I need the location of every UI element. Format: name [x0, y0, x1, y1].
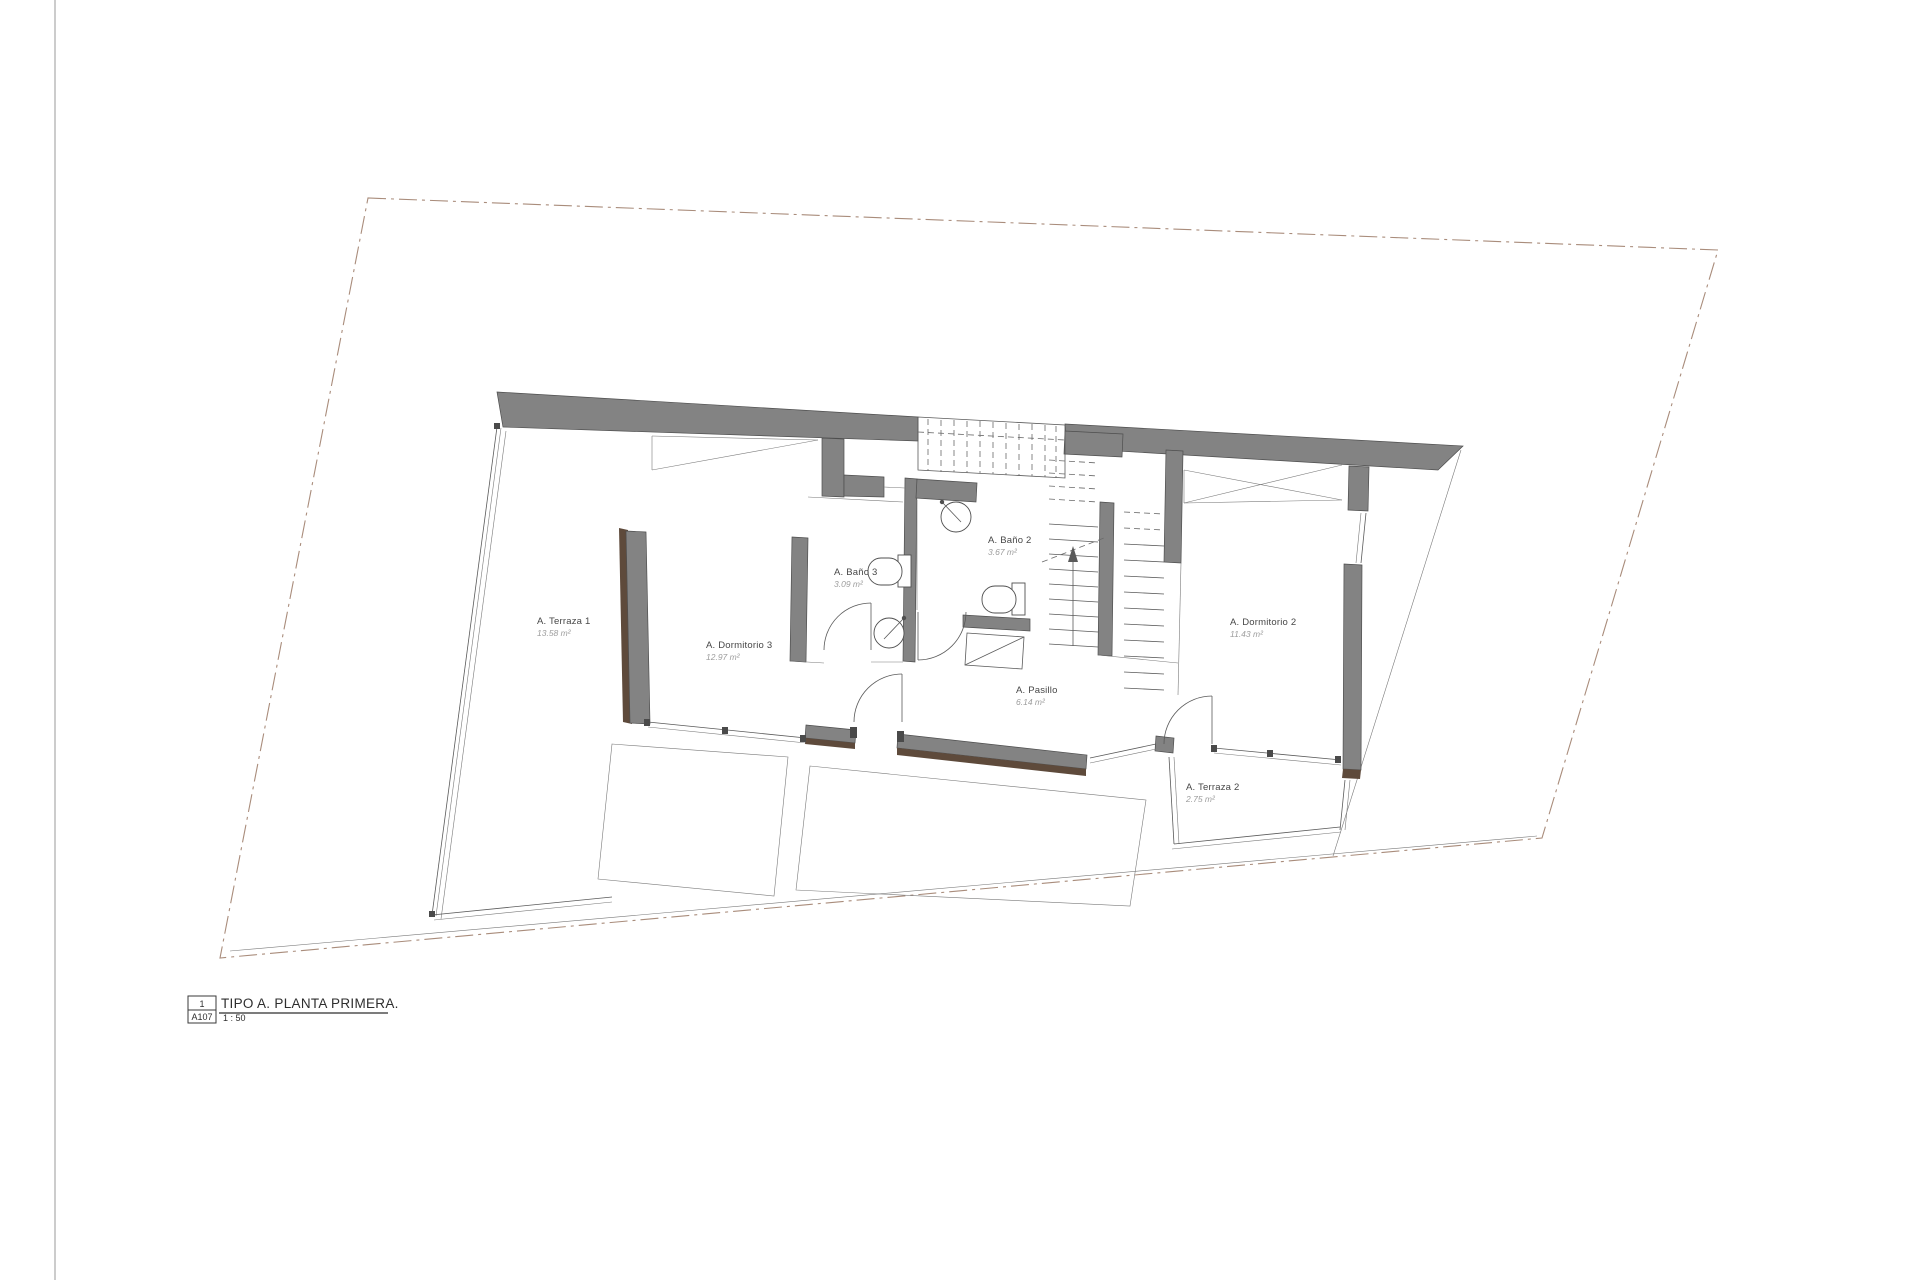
room-area: 3.09 m²: [834, 579, 864, 589]
drawing-sheet: A. Terraza 1 13.58 m² A. Dormitorio 3 12…: [0, 0, 1920, 1280]
closet-dorm3: [652, 436, 818, 470]
door-dorm2: [1164, 696, 1212, 744]
stair-arrow-head: [1068, 546, 1078, 562]
room-labels: A. Terraza 1 13.58 m² A. Dormitorio 3 12…: [537, 535, 1296, 804]
room-label: A. Dormitorio 3: [706, 640, 772, 651]
room-label: A. Terraza 1: [537, 616, 590, 627]
door-pasillo: [850, 674, 904, 742]
wall-bano3-column: [822, 438, 844, 497]
door-bano2: [918, 612, 966, 660]
lower-roof-left: [598, 744, 788, 896]
wall-bano3-stub: [844, 475, 884, 497]
wall-dorm2-right-cap: [1342, 769, 1361, 779]
wall-top-right: [1065, 424, 1463, 470]
terraza-1-outline: [429, 423, 612, 920]
room-label: A. Terraza 2: [1186, 782, 1239, 793]
title-block: 1 A107 TIPO A. PLANTA PRIMERA. 1 : 50: [188, 996, 399, 1023]
wall-stair-stub: [1064, 431, 1123, 457]
room-area: 2.75 m²: [1185, 794, 1216, 804]
room-area: 13.58 m²: [537, 628, 572, 638]
duct-shaft: [965, 633, 1024, 669]
wall-dorm2-right-upper: [1348, 466, 1369, 511]
wall-bano2-bottom: [963, 615, 1030, 631]
room-area: 12.97 m²: [706, 652, 741, 662]
plot-path-line: [230, 836, 1537, 951]
room-area: 11.43 m²: [1230, 629, 1264, 639]
wall-top-left: [497, 392, 918, 441]
drawing-title: TIPO A. PLANTA PRIMERA.: [221, 996, 399, 1011]
lower-roof-middle: [796, 766, 1146, 906]
room-label: A. Baño 3: [834, 567, 878, 578]
room-area: 3.67 m²: [988, 547, 1018, 557]
wall-bano2-top: [916, 479, 977, 502]
walls: [497, 392, 1463, 779]
wall-dorm3-right: [790, 537, 808, 662]
door-bano3: [824, 603, 871, 650]
drawing-scale: 1 : 50: [223, 1013, 246, 1023]
wall-dorm2-left: [1164, 450, 1183, 563]
wall-dorm2-right-lower: [1343, 564, 1362, 770]
floor-plan-svg: A. Terraza 1 13.58 m² A. Dormitorio 3 12…: [0, 0, 1920, 1280]
room-label: A. Dormitorio 2: [1230, 617, 1296, 628]
wall-stair-left: [1098, 502, 1114, 656]
detail-number: 1: [199, 999, 204, 1009]
room-area: 6.14 m²: [1016, 697, 1046, 707]
plot-boundary: [220, 198, 1718, 958]
toilet-bowl-bano2: [982, 586, 1016, 613]
stair-void-above: [918, 417, 1065, 478]
sheet-number: A107: [191, 1012, 212, 1022]
wall-dorm3-left: [626, 531, 650, 724]
closet-dorm2: [1184, 465, 1342, 503]
room-label: A. Pasillo: [1016, 685, 1058, 696]
room-label: A. Baño 2: [988, 535, 1032, 546]
